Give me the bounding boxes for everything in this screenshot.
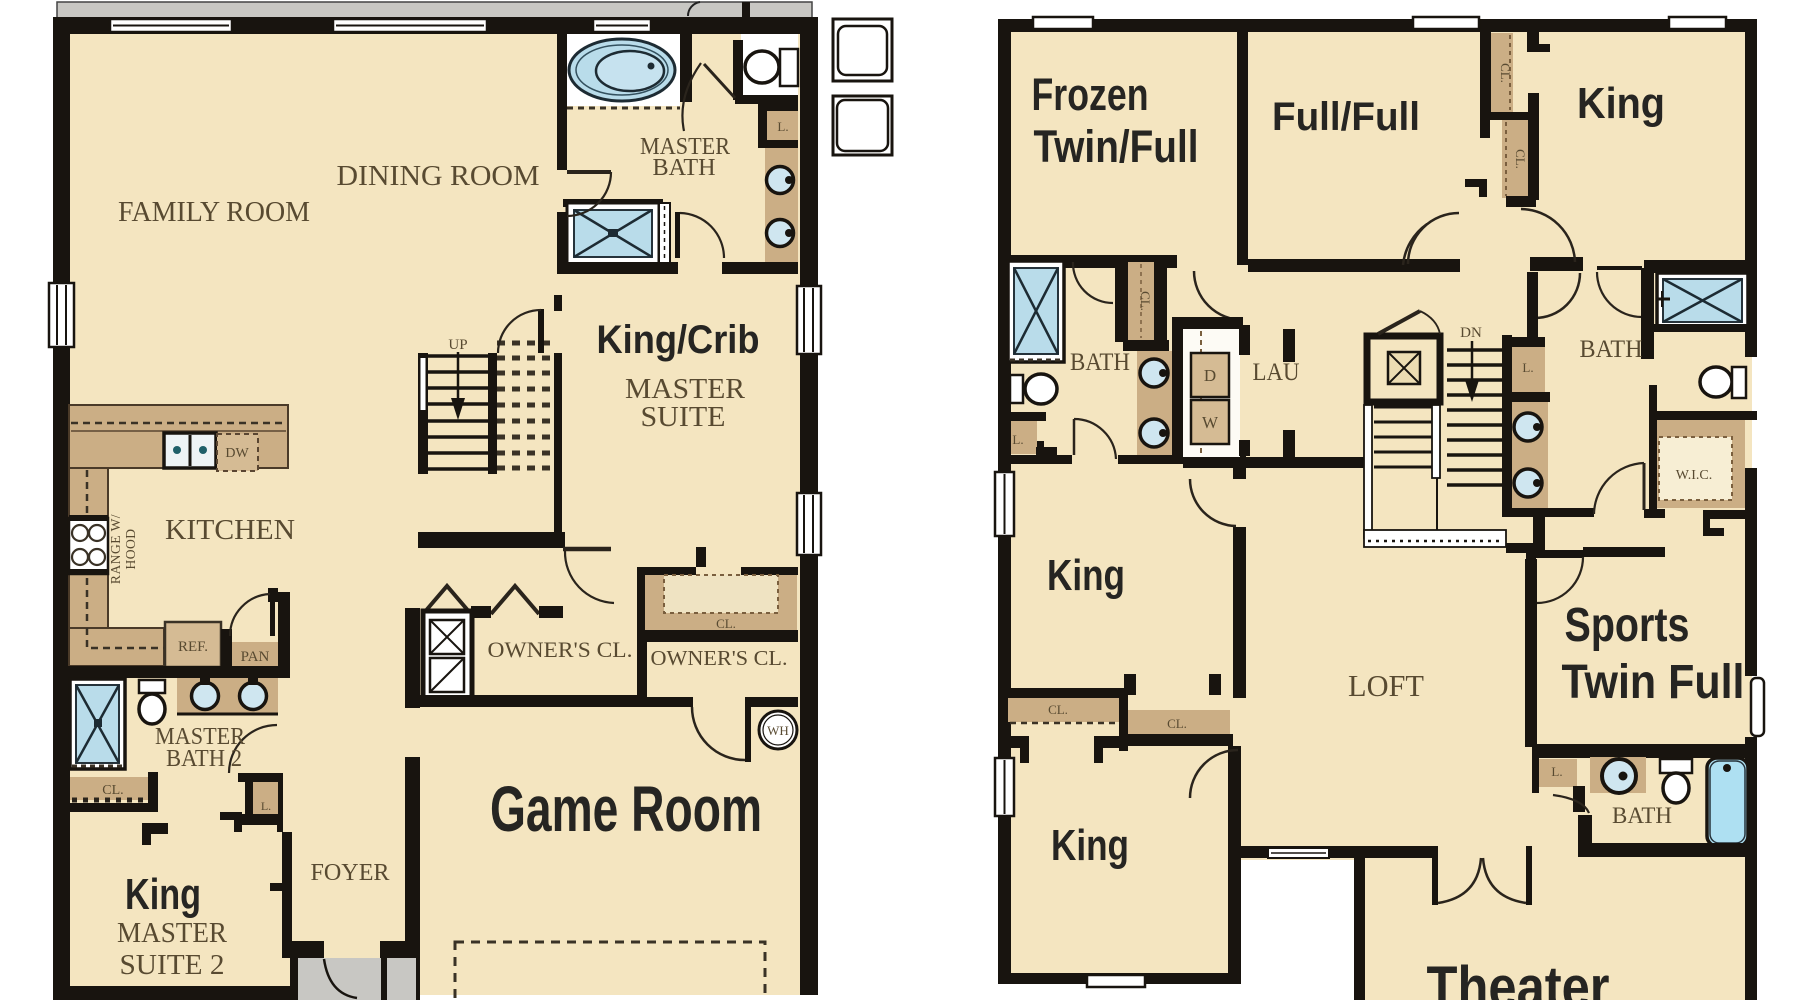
svg-text:FAMILY ROOM: FAMILY ROOM bbox=[118, 196, 310, 228]
svg-text:BATH: BATH bbox=[653, 155, 716, 181]
svg-text:DINING ROOM: DINING ROOM bbox=[337, 160, 540, 192]
svg-text:D: D bbox=[1204, 366, 1216, 385]
svg-text:SUITE 2: SUITE 2 bbox=[120, 949, 225, 981]
svg-text:CL.: CL. bbox=[1498, 63, 1513, 83]
svg-text:UP: UP bbox=[448, 337, 467, 353]
svg-text:Twin/Full: Twin/Full bbox=[1034, 121, 1199, 172]
svg-text:BATH 2: BATH 2 bbox=[166, 746, 242, 772]
svg-text:WH: WH bbox=[767, 723, 789, 738]
svg-text:L.: L. bbox=[1551, 764, 1562, 779]
svg-text:CL.: CL. bbox=[716, 616, 736, 631]
svg-text:KITCHEN: KITCHEN bbox=[165, 514, 295, 546]
svg-text:King: King bbox=[1051, 821, 1129, 870]
svg-text:Frozen: Frozen bbox=[1032, 69, 1149, 120]
svg-text:MASTER: MASTER bbox=[625, 374, 745, 405]
svg-text:BATH: BATH bbox=[1612, 803, 1672, 828]
svg-text:CL.: CL. bbox=[102, 783, 123, 798]
svg-text:W: W bbox=[1202, 413, 1219, 432]
svg-text:CL.: CL. bbox=[1048, 702, 1068, 717]
svg-text:King: King bbox=[125, 870, 201, 919]
svg-text:MASTER: MASTER bbox=[117, 917, 228, 949]
svg-text:CL.: CL. bbox=[1138, 291, 1153, 311]
svg-text:OWNER'S CL.: OWNER'S CL. bbox=[488, 637, 633, 662]
svg-text:CL.: CL. bbox=[1167, 716, 1187, 731]
svg-text:L.: L. bbox=[777, 119, 788, 134]
svg-text:BATH: BATH bbox=[1070, 349, 1130, 376]
svg-text:CL.: CL. bbox=[1513, 149, 1528, 169]
svg-text:DN: DN bbox=[1460, 325, 1482, 341]
svg-text:King: King bbox=[1047, 551, 1125, 600]
svg-text:REF.: REF. bbox=[178, 639, 208, 655]
svg-text:SUITE: SUITE bbox=[641, 402, 726, 433]
svg-text:Twin Full: Twin Full bbox=[1562, 656, 1745, 709]
svg-text:LOFT: LOFT bbox=[1348, 668, 1424, 703]
svg-text:Theater: Theater bbox=[1427, 955, 1610, 1000]
svg-text:L.: L. bbox=[1522, 360, 1533, 375]
svg-text:King: King bbox=[1577, 79, 1665, 128]
svg-text:OWNER'S CL.: OWNER'S CL. bbox=[651, 646, 788, 670]
svg-text:BATH: BATH bbox=[1580, 336, 1643, 363]
svg-text:HOOD: HOOD bbox=[123, 529, 138, 570]
svg-text:Full/Full: Full/Full bbox=[1272, 95, 1420, 139]
svg-text:Game Room: Game Room bbox=[490, 773, 762, 845]
svg-text:L.: L. bbox=[261, 799, 271, 813]
svg-text:DW: DW bbox=[225, 446, 249, 461]
svg-text:Sports: Sports bbox=[1565, 599, 1690, 652]
svg-text:W.I.C.: W.I.C. bbox=[1676, 468, 1712, 483]
svg-text:L.: L. bbox=[1012, 432, 1023, 447]
svg-text:King/Crib: King/Crib bbox=[597, 318, 760, 362]
svg-text:PAN: PAN bbox=[241, 649, 270, 665]
svg-text:RANGE W/: RANGE W/ bbox=[108, 514, 123, 584]
svg-text:FOYER: FOYER bbox=[311, 860, 390, 886]
svg-text:LAU: LAU bbox=[1253, 359, 1300, 386]
